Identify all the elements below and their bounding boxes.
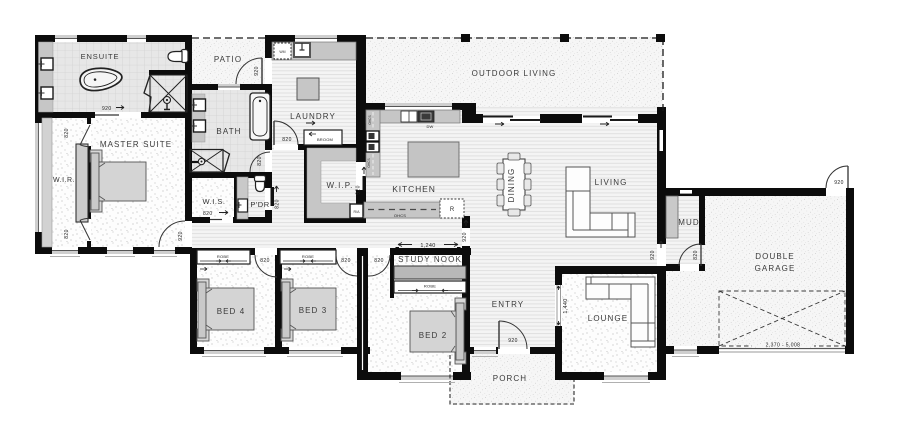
svg-text:BED 2: BED 2 [419,331,448,340]
svg-text:WM: WM [279,50,285,54]
svg-text:OUTDOOR LIVING: OUTDOOR LIVING [472,69,557,78]
svg-text:820: 820 [64,128,70,138]
svg-text:920: 920 [178,231,184,241]
svg-text:LAUNDRY: LAUNDRY [290,112,336,121]
svg-text:1,440: 1,440 [563,298,569,313]
svg-text:BED 3: BED 3 [299,306,328,315]
svg-text:DOUBLE: DOUBLE [755,252,795,261]
svg-text:920: 920 [650,250,656,260]
svg-text:BED 4: BED 4 [217,307,246,316]
svg-text:820: 820 [374,258,384,264]
svg-text:920: 920 [356,185,362,195]
svg-text:920: 920 [834,180,844,186]
svg-text:GARAGE: GARAGE [755,264,796,273]
svg-text:ENSUITE: ENSUITE [81,52,120,61]
svg-text:820: 820 [203,211,213,217]
svg-text:920: 920 [102,106,112,112]
svg-text:R/A: R/A [354,210,361,214]
svg-text:BROOM: BROOM [317,137,333,142]
svg-text:820: 820 [64,229,70,239]
svg-text:DINING: DINING [507,168,516,203]
svg-text:R: R [450,207,455,213]
svg-text:MASTER SUITE: MASTER SUITE [100,140,172,149]
svg-text:2,370 - 5,008: 2,370 - 5,008 [766,343,801,349]
svg-text:ENTRY: ENTRY [492,300,524,309]
svg-text:OHCS: OHCS [368,115,372,124]
svg-text:DW: DW [426,124,433,129]
svg-text:KITCHEN: KITCHEN [392,184,436,194]
svg-text:ROBE: ROBE [424,284,436,289]
svg-text:LIVING: LIVING [595,178,628,187]
svg-text:920: 920 [254,66,260,76]
svg-text:820: 820 [282,137,292,143]
svg-text:920: 920 [462,232,468,242]
svg-text:820: 820 [341,258,351,264]
svg-text:STUDY NOOK: STUDY NOOK [398,255,462,264]
svg-text:820: 820 [275,199,281,209]
svg-text:PORCH: PORCH [493,374,527,383]
svg-text:LOUNGE: LOUNGE [588,314,628,323]
svg-text:ROBE: ROBE [217,254,229,259]
svg-text:MUD: MUD [678,218,700,227]
svg-text:820: 820 [257,156,263,166]
svg-text:W.I.R.: W.I.R. [53,177,75,184]
svg-text:W.I.S.: W.I.S. [202,197,225,206]
svg-text:P'DR: P'DR [250,200,269,209]
svg-text:BATH: BATH [216,127,241,136]
svg-text:W.I.P.: W.I.P. [327,181,354,190]
svg-text:PATIO: PATIO [214,55,242,64]
svg-text:820: 820 [693,250,699,260]
svg-text:OHCS: OHCS [367,158,371,167]
svg-text:OHCS: OHCS [394,213,406,218]
svg-text:ROBE: ROBE [302,254,314,259]
svg-text:1,240: 1,240 [420,243,435,249]
svg-text:920: 920 [508,338,518,344]
svg-text:820: 820 [260,258,270,264]
